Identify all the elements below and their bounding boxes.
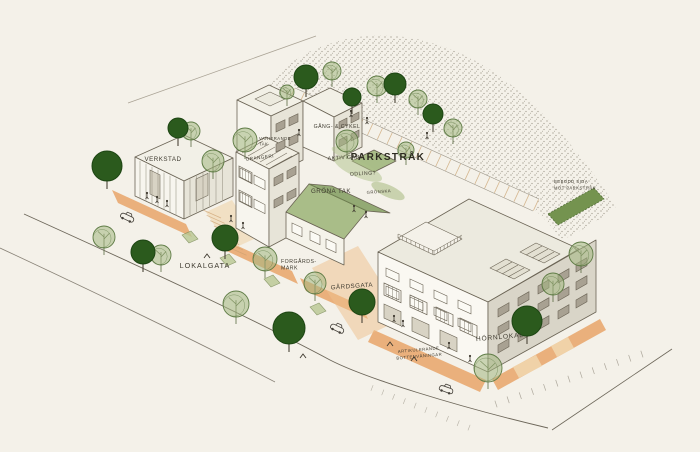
tree-light [569,242,593,266]
label-forgards-1: FORGÅRDS- [281,258,317,265]
person [448,342,450,344]
tree-dark [273,312,305,344]
tree-dark [343,88,361,106]
person [166,200,168,202]
label-gang-cykel: GÅNG- & CYKEL [314,123,361,130]
tree-light [280,85,294,99]
tree-light [93,226,115,248]
tree-dark [92,151,122,181]
person [350,110,352,112]
tree-dark [423,104,443,124]
tree-dark [384,73,406,95]
person [426,132,428,134]
tree-dark [131,240,155,264]
person [146,192,148,194]
illustration-canvas: VERKSTAD VARIERANDE TAK ORANGERI GÅNG- &… [0,0,700,452]
tree-light [409,90,427,108]
tree-dark [512,306,542,336]
tree-light [253,247,277,271]
person [353,205,355,207]
label-verkstad: VERKSTAD [145,156,182,163]
tree-light [542,273,564,295]
tree-dark [349,289,375,315]
tree-light [336,130,358,152]
tree-light [202,150,224,172]
person [242,222,244,224]
person [298,129,300,131]
label-grona-tak: GRÖNA TAK [311,188,351,195]
site-sketch: VERKSTAD VARIERANDE TAK ORANGERI GÅNG- &… [0,0,700,452]
tree-light [233,128,257,152]
person [156,196,158,198]
label-bebodd-1: BEBODD SIDA [554,179,588,184]
person [393,315,395,317]
person [366,117,368,119]
label-bebodd-2: MOT PARKSTRÅK [554,186,596,191]
person [469,355,471,357]
tree-dark [212,225,238,251]
tree-dark [168,118,188,138]
tree-dark [294,65,318,89]
label-forgards-2: MARK [281,266,298,272]
tree-light [304,272,326,294]
label-lokalgata: LOKALGATA [180,261,231,270]
person [365,211,367,213]
person [402,320,404,322]
tree-light [323,62,341,80]
tree-light [444,119,462,137]
person [230,215,232,217]
label-varierande-tak-2: TAK [259,142,268,147]
window [150,170,160,199]
label-varierande-tak-1: VARIERANDE [259,136,291,141]
